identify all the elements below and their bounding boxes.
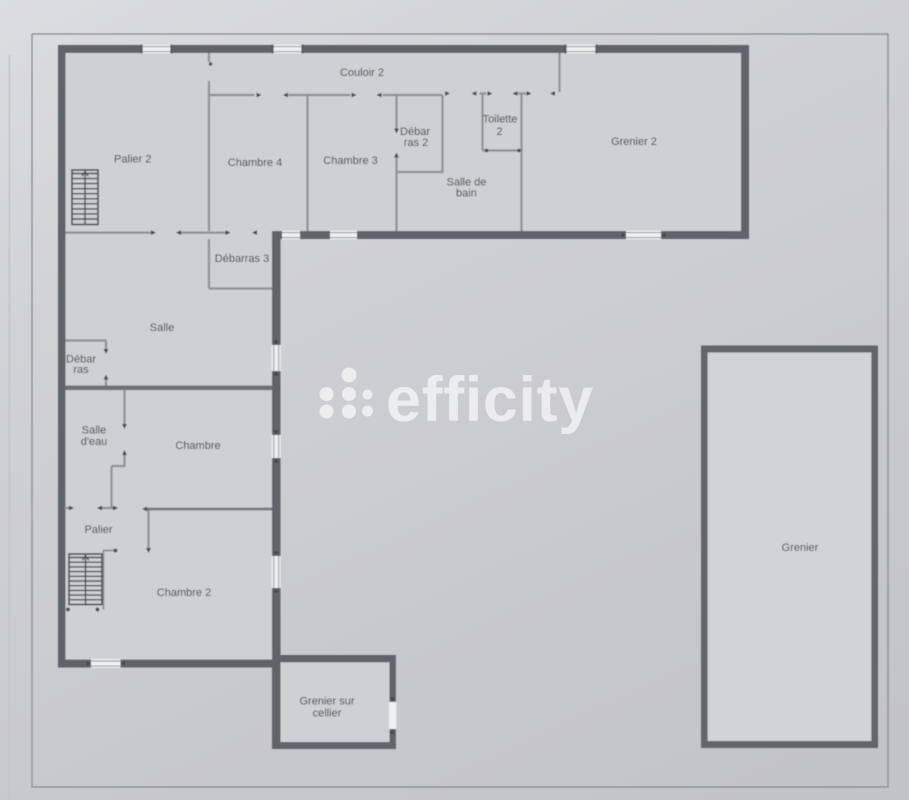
svg-text:Grenier 2: Grenier 2 xyxy=(611,136,657,148)
svg-text:Chambre 2: Chambre 2 xyxy=(157,587,211,599)
svg-text:Débarras 3: Débarras 3 xyxy=(215,253,269,265)
svg-text:Palier 2: Palier 2 xyxy=(114,154,151,166)
svg-text:ras: ras xyxy=(73,364,89,376)
svg-text:cellier: cellier xyxy=(313,708,342,720)
svg-text:2: 2 xyxy=(496,126,502,138)
svg-text:Grenier: Grenier xyxy=(782,542,819,554)
svg-text:bain: bain xyxy=(456,188,477,200)
svg-text:Chambre: Chambre xyxy=(175,440,220,452)
svg-text:Salle: Salle xyxy=(150,322,174,334)
svg-text:Couloir 2: Couloir 2 xyxy=(340,67,384,79)
svg-text:Chambre 4: Chambre 4 xyxy=(228,157,282,169)
svg-text:d'eau: d'eau xyxy=(81,436,108,448)
svg-text:Palier: Palier xyxy=(84,524,112,536)
svg-text:Chambre 3: Chambre 3 xyxy=(323,155,377,167)
svg-text:ras 2: ras 2 xyxy=(404,137,428,149)
svg-text:Grenier sur: Grenier sur xyxy=(299,696,354,708)
svg-text:efficity: efficity xyxy=(386,365,594,435)
svg-text:Salle: Salle xyxy=(82,425,106,437)
svg-text:Toilette: Toilette xyxy=(483,114,518,126)
